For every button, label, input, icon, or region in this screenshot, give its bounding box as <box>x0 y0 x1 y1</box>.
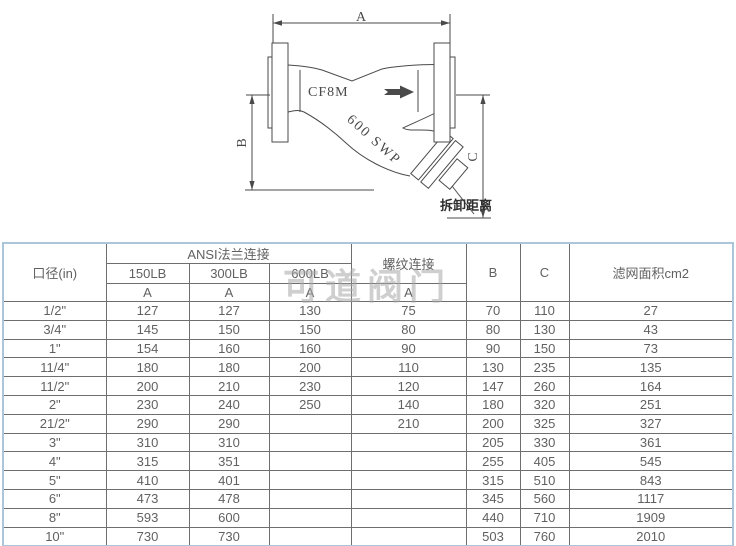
table-cell: 440 <box>466 508 520 527</box>
table-row: 1"154160160909015073 <box>3 339 733 358</box>
dim-c-label: C <box>466 152 481 161</box>
table-cell: 160 <box>189 339 269 358</box>
header-600lb: 600LB <box>269 264 351 284</box>
table-cell: 150 <box>189 320 269 339</box>
table-cell: 140 <box>351 395 466 414</box>
table-row: 3/4"145150150808013043 <box>3 320 733 339</box>
header-a-threaded: A <box>351 284 466 302</box>
table-cell: 135 <box>569 358 733 377</box>
table-cell <box>269 489 351 508</box>
table-cell: 10" <box>3 527 106 546</box>
table-cell: 250 <box>269 395 351 414</box>
table-cell <box>351 527 466 546</box>
table-cell: 361 <box>569 433 733 452</box>
table-cell: 600 <box>189 508 269 527</box>
dim-b-label: B <box>235 138 250 147</box>
table-cell: 560 <box>520 489 569 508</box>
header-a-150: A <box>106 284 189 302</box>
header-c: C <box>520 243 569 302</box>
table-row: 11/2"200210230120147260164 <box>3 377 733 396</box>
table-cell: 27 <box>569 302 733 321</box>
strainer-body <box>288 65 443 177</box>
table-cell <box>269 433 351 452</box>
table-cell: 154 <box>106 339 189 358</box>
table-cell: 760 <box>520 527 569 546</box>
table-cell: 43 <box>569 320 733 339</box>
table-cell: 110 <box>520 302 569 321</box>
table-cell <box>269 452 351 471</box>
table-cell <box>351 433 466 452</box>
table-cell: 310 <box>189 433 269 452</box>
table-cell: 1/2" <box>3 302 106 321</box>
table-row: 21/2"290290210200325327 <box>3 414 733 433</box>
table-cell: 70 <box>466 302 520 321</box>
header-a-600: A <box>269 284 351 302</box>
table-cell: 325 <box>520 414 569 433</box>
table-cell: 260 <box>520 377 569 396</box>
datasheet-page: A CF8M <box>0 0 736 546</box>
table-cell: 405 <box>520 452 569 471</box>
table-body: 1/2"1271271307570110273/4"14515015080801… <box>3 302 733 546</box>
header-screen-area: 滤网面积cm2 <box>569 243 733 302</box>
table-cell: 205 <box>466 433 520 452</box>
table-cell: 130 <box>520 320 569 339</box>
table-cell: 150 <box>520 339 569 358</box>
rating-label: 600 SWP <box>344 112 404 168</box>
header-300lb: 300LB <box>189 264 269 284</box>
table-cell: 330 <box>520 433 569 452</box>
table-cell: 230 <box>106 395 189 414</box>
y-strainer-drawing: A CF8M <box>0 0 736 240</box>
dimension-b: B <box>235 95 374 190</box>
table-cell: 210 <box>189 377 269 396</box>
table-cell: 473 <box>106 489 189 508</box>
table-cell: 11/2" <box>3 377 106 396</box>
table-cell: 90 <box>351 339 466 358</box>
table-cell: 130 <box>269 302 351 321</box>
table-cell: 127 <box>189 302 269 321</box>
table-row: 3"310310205330361 <box>3 433 733 452</box>
table-cell: 730 <box>106 527 189 546</box>
table-cell: 315 <box>466 471 520 490</box>
table-cell: 255 <box>466 452 520 471</box>
table-row: 10"7307305037602010 <box>3 527 733 546</box>
header-ansi-flange: ANSI法兰连接 <box>106 243 351 264</box>
table-cell: 180 <box>466 395 520 414</box>
table-cell: 545 <box>569 452 733 471</box>
table-cell <box>269 471 351 490</box>
table-cell: 251 <box>569 395 733 414</box>
dim-a-label: A <box>356 10 367 25</box>
table-cell: 200 <box>106 377 189 396</box>
table-cell: 710 <box>520 508 569 527</box>
table-row: 6"4734783455601117 <box>3 489 733 508</box>
table-cell: 90 <box>466 339 520 358</box>
table-cell: 230 <box>269 377 351 396</box>
table-cell: 1" <box>3 339 106 358</box>
table-cell: 21/2" <box>3 414 106 433</box>
table-cell: 80 <box>466 320 520 339</box>
table-cell <box>351 489 466 508</box>
table-cell: 200 <box>269 358 351 377</box>
table-cell: 8" <box>3 508 106 527</box>
table-cell: 3/4" <box>3 320 106 339</box>
table-cell: 401 <box>189 471 269 490</box>
header-diameter: 口径(in) <box>3 243 106 302</box>
table-cell: 345 <box>466 489 520 508</box>
table-cell: 11/4" <box>3 358 106 377</box>
dimension-a: A <box>273 10 450 47</box>
table-cell: 843 <box>569 471 733 490</box>
table-cell: 150 <box>269 320 351 339</box>
table-cell: 4" <box>3 452 106 471</box>
table-cell: 6" <box>3 489 106 508</box>
table-cell: 164 <box>569 377 733 396</box>
table-cell <box>351 452 466 471</box>
table-cell <box>269 527 351 546</box>
table-row: 1/2"127127130757011027 <box>3 302 733 321</box>
table-cell: 3" <box>3 433 106 452</box>
table-cell: 730 <box>189 527 269 546</box>
table-cell: 130 <box>466 358 520 377</box>
table-cell: 327 <box>569 414 733 433</box>
table-cell: 200 <box>466 414 520 433</box>
table-cell <box>351 508 466 527</box>
table-cell <box>269 414 351 433</box>
left-flange <box>268 43 288 142</box>
header-150lb: 150LB <box>106 264 189 284</box>
table-cell: 180 <box>106 358 189 377</box>
table-cell: 145 <box>106 320 189 339</box>
table-cell: 235 <box>520 358 569 377</box>
table-cell: 210 <box>351 414 466 433</box>
table-cell: 5" <box>3 471 106 490</box>
spec-table-header: 口径(in) ANSI法兰连接 螺纹连接 B C 滤网面积cm2 150LB 3… <box>3 243 733 302</box>
right-flange <box>434 43 455 142</box>
table-cell: 73 <box>569 339 733 358</box>
table-cell: 290 <box>189 414 269 433</box>
table-cell: 351 <box>189 452 269 471</box>
table-cell: 2010 <box>569 527 733 546</box>
table-cell: 120 <box>351 377 466 396</box>
removal-distance-callout: 拆卸距离 <box>440 186 492 214</box>
table-cell <box>269 508 351 527</box>
table-cell: 478 <box>189 489 269 508</box>
table-cell: 160 <box>269 339 351 358</box>
flow-direction-arrow <box>384 86 414 99</box>
table-cell: 410 <box>106 471 189 490</box>
table-cell: 147 <box>466 377 520 396</box>
table-row: 2"230240250140180320251 <box>3 395 733 414</box>
table-cell: 593 <box>106 508 189 527</box>
table-cell: 2" <box>3 395 106 414</box>
table-cell: 240 <box>189 395 269 414</box>
table-cell: 503 <box>466 527 520 546</box>
table-cell: 290 <box>106 414 189 433</box>
table-cell: 320 <box>520 395 569 414</box>
table-cell: 310 <box>106 433 189 452</box>
table-cell: 127 <box>106 302 189 321</box>
header-b: B <box>466 243 520 302</box>
table-cell: 1117 <box>569 489 733 508</box>
table-row: 5"410401315510843 <box>3 471 733 490</box>
header-threaded: 螺纹连接 <box>351 243 466 284</box>
table-cell: 75 <box>351 302 466 321</box>
table-row: 8"5936004407101909 <box>3 508 733 527</box>
table-cell: 315 <box>106 452 189 471</box>
table-row: 4"315351255405545 <box>3 452 733 471</box>
spec-table: 口径(in) ANSI法兰连接 螺纹连接 B C 滤网面积cm2 150LB 3… <box>2 242 734 546</box>
table-cell: 80 <box>351 320 466 339</box>
body-material-label: CF8M <box>308 85 349 100</box>
removal-distance-label: 拆卸距离 <box>440 198 492 214</box>
table-cell <box>351 471 466 490</box>
table-cell: 110 <box>351 358 466 377</box>
table-cell: 1909 <box>569 508 733 527</box>
table-cell: 510 <box>520 471 569 490</box>
table-cell: 180 <box>189 358 269 377</box>
table-row: 11/4"180180200110130235135 <box>3 358 733 377</box>
header-a-300: A <box>189 284 269 302</box>
